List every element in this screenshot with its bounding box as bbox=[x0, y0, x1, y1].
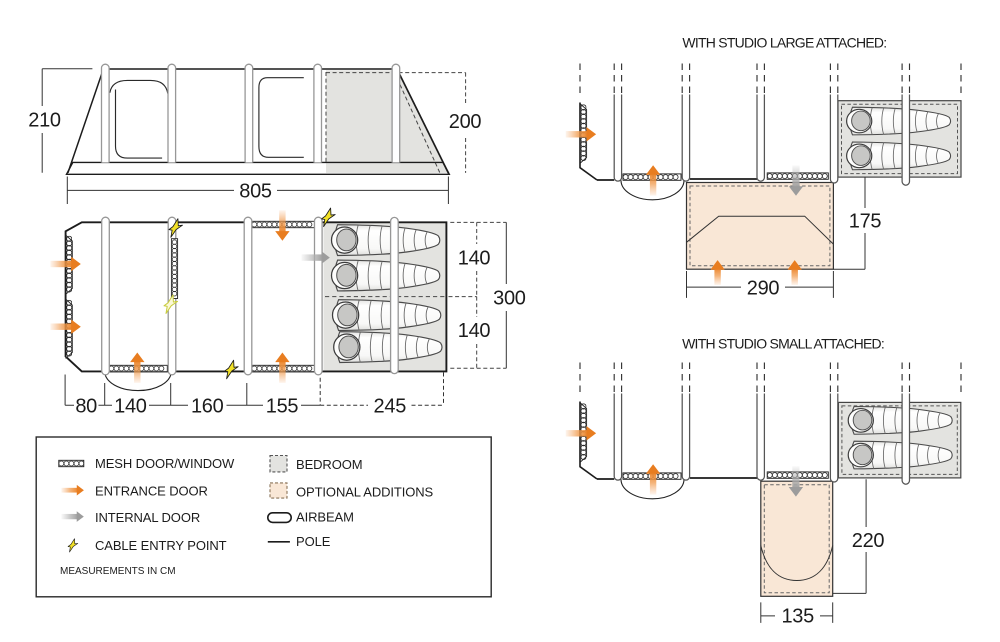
svg-text:MEASUREMENTS IN CM: MEASUREMENTS IN CM bbox=[60, 566, 176, 577]
svg-text:140: 140 bbox=[458, 248, 491, 270]
svg-text:220: 220 bbox=[852, 530, 885, 552]
svg-text:140: 140 bbox=[114, 395, 147, 417]
svg-text:INTERNAL DOOR: INTERNAL DOOR bbox=[95, 510, 200, 525]
svg-text:WITH STUDIO LARGE ATTACHED:: WITH STUDIO LARGE ATTACHED: bbox=[682, 35, 886, 51]
svg-text:805: 805 bbox=[239, 180, 272, 202]
svg-text:155: 155 bbox=[266, 395, 299, 417]
svg-text:CABLE ENTRY POINT: CABLE ENTRY POINT bbox=[95, 538, 227, 553]
svg-text:200: 200 bbox=[449, 111, 482, 133]
svg-text:290: 290 bbox=[747, 278, 780, 300]
svg-text:300: 300 bbox=[493, 287, 526, 309]
svg-text:245: 245 bbox=[374, 395, 407, 417]
svg-text:80: 80 bbox=[75, 395, 97, 417]
svg-text:WITH STUDIO SMALL ATTACHED:: WITH STUDIO SMALL ATTACHED: bbox=[682, 336, 884, 352]
svg-text:ENTRANCE DOOR: ENTRANCE DOOR bbox=[95, 484, 208, 499]
svg-text:AIRBEAM: AIRBEAM bbox=[296, 510, 354, 525]
svg-text:OPTIONAL ADDITIONS: OPTIONAL ADDITIONS bbox=[296, 485, 434, 500]
svg-text:175: 175 bbox=[849, 211, 882, 233]
svg-text:POLE: POLE bbox=[296, 534, 331, 549]
svg-text:MESH DOOR/WINDOW: MESH DOOR/WINDOW bbox=[95, 456, 235, 471]
svg-text:135: 135 bbox=[781, 606, 814, 628]
svg-text:BEDROOM: BEDROOM bbox=[296, 457, 362, 472]
svg-text:210: 210 bbox=[28, 110, 61, 132]
svg-text:140: 140 bbox=[458, 320, 491, 342]
svg-text:160: 160 bbox=[191, 395, 224, 417]
